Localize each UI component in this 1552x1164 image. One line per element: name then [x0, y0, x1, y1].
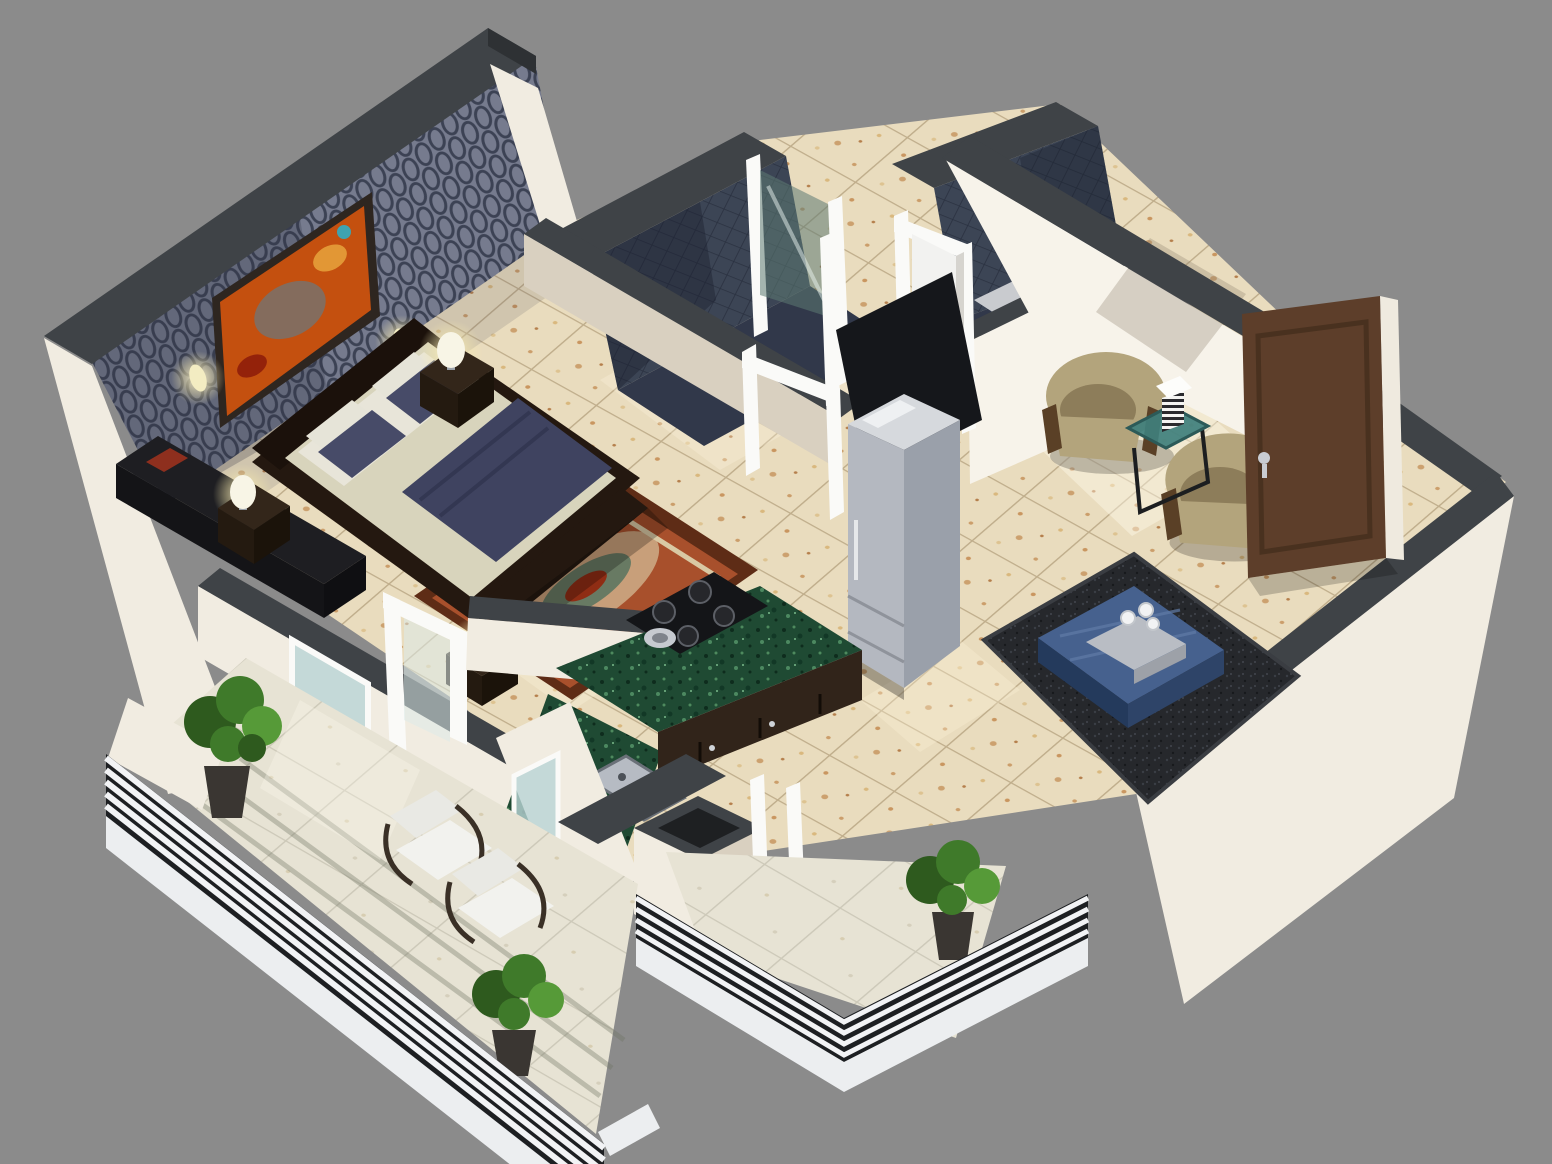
refrigerator [848, 394, 960, 700]
chair-front [1052, 416, 1142, 462]
steel-bowl-inner [652, 633, 668, 643]
painting-motif [337, 225, 351, 239]
cabinet-handle [769, 721, 775, 727]
sink-drain [618, 773, 626, 781]
plant-pot [204, 766, 250, 818]
floorplan-render [0, 0, 1552, 1164]
egg-lamp [437, 332, 465, 368]
door-handle-stem [1262, 464, 1267, 478]
render-canvas [0, 0, 1552, 1164]
cabinet-handle [709, 745, 715, 751]
egg-lamp [230, 475, 256, 509]
fridge-side [904, 420, 960, 688]
plant-pot [932, 912, 974, 960]
entrance-door [1242, 296, 1404, 596]
door-handle [1258, 452, 1270, 464]
